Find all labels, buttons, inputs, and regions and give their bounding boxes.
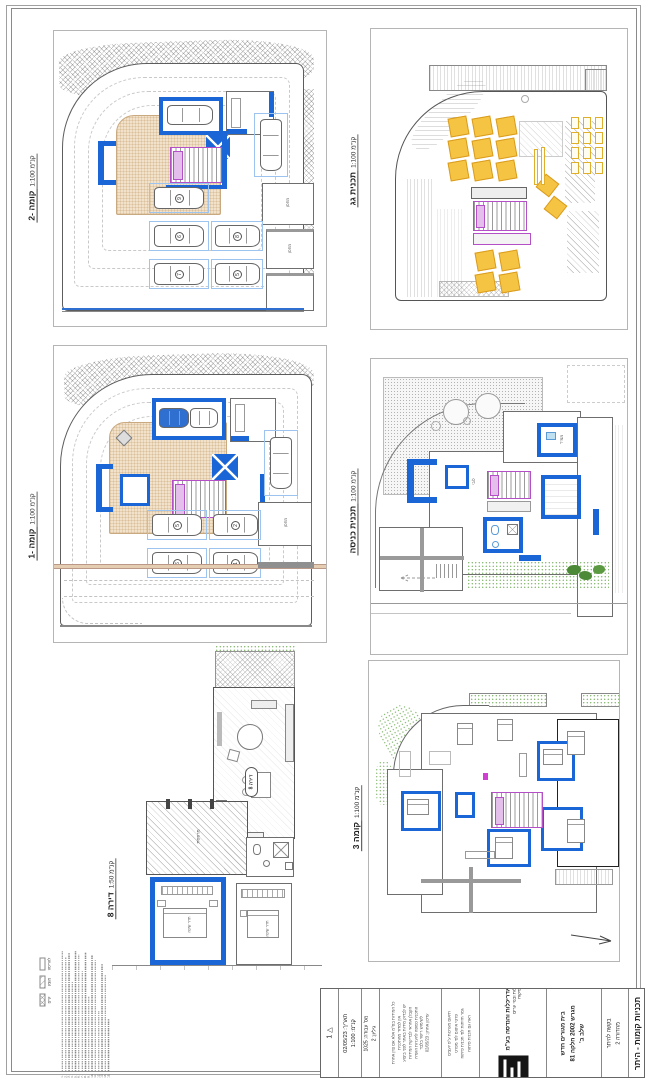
shaft-marker [483, 773, 488, 780]
tb-date-cell: תאריך: 02/05/23 קנ"מ: 1:100 [339, 989, 362, 1077]
room-label: מחסן [283, 518, 288, 527]
wall-segment [96, 464, 102, 512]
bed-icon [495, 837, 513, 859]
tb-number-cell: מס' עבודה: 1025 גיליון: 2 [362, 989, 380, 1077]
storage-room: מחסן [262, 183, 314, 225]
note-text-bar [78, 954, 79, 1071]
plan-apt8: דירה 8 מרפסת חדר שינה חדר שינה [100, 643, 330, 975]
parking-stall: 6 [147, 548, 207, 578]
roof-hatch [567, 211, 599, 273]
note-text-bar [107, 1019, 108, 1071]
shrub-icon [431, 421, 441, 431]
sofa [251, 700, 277, 709]
stall-number: 2 [231, 521, 240, 530]
tb-sheet-title-cell: תכניות קומות - היתר [629, 989, 646, 1077]
wall-segment [593, 509, 599, 535]
armchair [227, 749, 240, 762]
sheet-line: גיליון: 2 [371, 1015, 379, 1051]
bed-icon [567, 819, 585, 843]
pergola-hatch [585, 69, 607, 91]
note-number: 4. [70, 1072, 73, 1077]
note-text-bar [68, 953, 69, 1071]
fixture [546, 432, 556, 440]
parking-stall: 7 [149, 259, 209, 289]
note-text-bar [61, 951, 62, 1071]
note-item: 3. [67, 951, 70, 1078]
stamp-mark [510, 1067, 513, 1077]
bathroom [246, 837, 294, 877]
staircase [473, 201, 527, 231]
column [188, 799, 192, 809]
note-item: 15. [106, 951, 109, 1078]
plan-title: תכנית גג [347, 169, 358, 206]
plan-scale: קנ"מ 1:100 [30, 491, 38, 526]
balcony-hatch [555, 869, 613, 885]
staircase [487, 471, 531, 499]
plan-entrance: ממ"ד לובי [370, 358, 628, 655]
room-label: מרפסת [196, 829, 201, 843]
bathroom [483, 517, 523, 553]
plan-scale: קנ"מ 1:100 [350, 469, 358, 504]
garage-blue [159, 97, 223, 135]
panel-outline [571, 162, 579, 174]
closet [241, 889, 285, 898]
toilet-icon [491, 525, 499, 535]
shelf [235, 404, 245, 432]
car-icon [260, 119, 282, 171]
tb-notes-a-cell: כל המידות בס"מ אלא אם צוין אחרת אין למדו… [380, 989, 442, 1077]
parking-stall [264, 430, 298, 496]
car-icon: 2 [213, 514, 258, 536]
roof-hatch [439, 281, 509, 297]
scale-line: קנ"מ: 1:100 [350, 1014, 358, 1053]
room-label: מחסן [287, 244, 292, 253]
panel-outline [595, 117, 603, 129]
column [210, 799, 214, 809]
panel-outline [571, 117, 579, 129]
tb-notes-b-cell: תיאום מערכות ע"פ יועצים פרטי איטום לפי מ… [442, 989, 480, 1077]
wall-segment [227, 129, 247, 134]
note-text-bar [94, 960, 95, 1071]
shrub-blob [579, 571, 592, 580]
staircase [491, 792, 543, 828]
note-number: 1. [60, 1072, 63, 1077]
solar-panel [471, 115, 493, 137]
solar-panel [474, 249, 496, 271]
dimension-line [112, 965, 322, 970]
roof-drain [521, 95, 529, 103]
note-number: 6. [77, 1072, 80, 1077]
plan-title: תכנית כניסה [347, 504, 358, 556]
panel-outline [583, 147, 591, 159]
solar-panel [498, 249, 520, 271]
blue-room [455, 792, 475, 818]
shelf [231, 98, 241, 128]
kitchen-counter [465, 851, 495, 859]
apt-tag: דירה 8 [245, 767, 258, 797]
job-line: מס' עבודה: 1025 [363, 1015, 371, 1051]
direction-arrow-icon [393, 573, 437, 583]
title-block: △ 1 תאריך: 02/05/23 קנ"מ: 1:100 מס' עבוד… [320, 988, 645, 1078]
firm-stamp-logo [498, 1055, 528, 1077]
note-item: 1. [60, 951, 63, 1078]
legend-label: להריסה [46, 958, 51, 971]
legend-item: קיים [39, 994, 51, 1007]
car-icon: 6 [152, 552, 202, 574]
stair-landing-gray [487, 501, 531, 512]
date-line: תאריך: 02/05/23 [342, 1014, 350, 1053]
note-number: 13. [100, 1072, 103, 1077]
car-icon: 6 [154, 225, 204, 247]
panel-outline [583, 117, 591, 129]
site-edge-blue [62, 308, 304, 310]
tb-revision-cell: △ 1 [321, 989, 339, 1077]
nightstand [157, 900, 166, 907]
setback-dashed [567, 365, 625, 403]
note-item: 2. [64, 951, 67, 1078]
site-edge [60, 625, 312, 627]
stall-number: 7 [175, 270, 184, 279]
note-number: 14. [103, 1072, 106, 1077]
apt-tag-text: דירה 8 [249, 775, 255, 790]
blue-room [120, 474, 150, 506]
solar-panel [471, 159, 493, 181]
note-text-bar [98, 1011, 99, 1071]
note-item: 14. [103, 951, 106, 1078]
note-item: 6. [77, 951, 80, 1078]
parking-stall: 8 [211, 221, 263, 251]
sheet-title: תכניות קומות - היתר [633, 996, 642, 1069]
stamp-mark [517, 1061, 520, 1077]
sofa [429, 751, 451, 765]
plan-roof [370, 28, 628, 330]
plan-scale: קנ"מ 1:100 [354, 785, 362, 820]
note-item: 9. [87, 951, 90, 1078]
note-number: 7. [80, 1072, 83, 1077]
panel-outline [595, 162, 603, 174]
planter-strip [581, 693, 620, 707]
note-text-bar [71, 981, 72, 1071]
car-icon [167, 105, 213, 125]
solar-panel [447, 159, 469, 181]
stair-landing [490, 475, 499, 496]
bed-icon [247, 910, 279, 938]
note-text-bar [104, 975, 105, 1071]
stair-treads [436, 564, 460, 578]
note-item: 7. [80, 951, 83, 1078]
solar-panel [495, 115, 517, 137]
road-dashed-curve [62, 598, 142, 624]
note-number: 15. [107, 1072, 110, 1077]
legend-label: מוצע [46, 978, 51, 986]
legend-item: מוצע [39, 976, 51, 989]
room-label: ממ"ד [559, 435, 564, 444]
solar-panel [447, 137, 469, 159]
firm-subline: רישוי ופיקוח [516, 989, 521, 1050]
building-wing [387, 769, 443, 895]
wall-segment [469, 867, 473, 913]
legend-item: להריסה [39, 958, 51, 971]
project-line: בית מגורים חדש [560, 1005, 570, 1061]
mamad-room: ממ"ד [537, 423, 577, 457]
firm-name: מ.ג אדריכלות והנדסה בע"מ [505, 989, 511, 1050]
road-bar [258, 562, 314, 568]
note-item: 10. [90, 951, 93, 1078]
garage-blue [152, 398, 226, 440]
tv-unit [217, 712, 222, 746]
bed-icon [457, 723, 473, 745]
plan-roof-label: קנ"מ 1:100תכנית גג [332, 128, 370, 213]
plan-title: דירה 8 [105, 890, 116, 919]
column [166, 799, 170, 809]
panel-outline [595, 147, 603, 159]
closet [161, 886, 213, 895]
wall-segment [98, 180, 116, 185]
car-icon: 8 [215, 225, 260, 247]
blue-room [541, 475, 581, 519]
nightstand [209, 900, 218, 907]
note-number: 10. [90, 1072, 93, 1077]
plan-scale: קנ"מ 1:50 [108, 859, 116, 891]
car-icon [270, 437, 292, 489]
wall-segment [96, 507, 113, 512]
room-label: חדר שינה [265, 920, 270, 936]
note-item: 5. [73, 951, 76, 1078]
wall-segment [98, 141, 116, 146]
parking-stall [254, 113, 288, 177]
solar-panel [498, 271, 520, 293]
stair-landing [495, 797, 504, 825]
doc-line: מהדורה 2 [615, 1018, 624, 1048]
room-label: חדר שינה [187, 916, 192, 932]
legend-swatch [39, 976, 45, 989]
stall-number: 8 [233, 232, 242, 241]
bedroom-blue: חדר שינה [150, 877, 226, 965]
machine-room [473, 233, 531, 245]
parking-stall: 9 [149, 183, 209, 213]
wall-segment [222, 131, 227, 189]
revision-number: 1 [327, 1035, 334, 1039]
plan-entrance-label: קנ"מ 1:100תכנית כניסה [332, 462, 370, 562]
equipment-box [212, 454, 238, 480]
solar-panel [495, 159, 517, 181]
edge-hatch [615, 425, 625, 593]
shrub-blob [593, 565, 605, 574]
storage-room: מחסן [266, 229, 314, 269]
plan-scale: קנ"מ 1:100 [30, 153, 38, 188]
solar-panel [495, 137, 517, 159]
car-icon: 5 [215, 263, 260, 285]
car-icon: 9 [154, 187, 204, 209]
plan-title: קומה -1 [27, 526, 38, 560]
bed-icon [497, 719, 513, 741]
tb-doc-cell: בקשה להיתר מהדורה 2 [602, 989, 629, 1077]
project-line: שלב ב' [579, 1005, 589, 1061]
stamp-mark [503, 1059, 506, 1077]
room-label: מחסן [285, 198, 290, 207]
note-text-bar [84, 952, 85, 1071]
solar-panel [471, 137, 493, 159]
wall-segment [231, 436, 249, 441]
note-text-bar [75, 951, 76, 1071]
bed-icon [567, 731, 585, 755]
note-number: 12. [97, 1072, 100, 1077]
panel-outline [595, 132, 603, 144]
note-item: 11. [93, 951, 96, 1078]
shower-icon [273, 842, 289, 858]
sink-icon [263, 860, 270, 867]
stall-number: 9 [175, 194, 184, 203]
stair-landing [173, 151, 183, 180]
solar-panel [447, 115, 469, 137]
staircase [170, 147, 222, 183]
tb-small-line: ראה גם תכנית פיתוח [467, 1008, 474, 1058]
blue-room [445, 465, 469, 489]
nightstand [240, 910, 247, 917]
tree-icon [475, 393, 501, 419]
plan-scale: קנ"מ 1:100 [350, 134, 358, 169]
bed-icon [543, 749, 563, 765]
notes-block: 1. 2. 3. 4. 5. 6. 7. 8. 9. 10. 11. 12. 1… [58, 948, 112, 1080]
stall-number: 5 [233, 270, 242, 279]
car-icon [159, 408, 189, 428]
wall-segment [407, 497, 437, 503]
coffee-table [237, 724, 263, 750]
parking-stall: 2 [209, 510, 261, 540]
sink-icon [492, 541, 499, 548]
wall-segment [96, 464, 113, 469]
sofa [399, 751, 411, 777]
storage-room: מחסן [258, 502, 312, 546]
legend: קיים מוצע להריסה [30, 952, 60, 1012]
legend-swatch [39, 958, 45, 971]
panel-outline [534, 149, 538, 185]
plan-apt8-label: קנ"מ 1:50דירה 8 [94, 843, 124, 935]
panel-outline [541, 147, 545, 185]
legend-swatch [39, 994, 45, 1007]
panel-outline [571, 147, 579, 159]
roof-hatch [407, 179, 435, 297]
panel-outline [583, 132, 591, 144]
machine-room [471, 187, 527, 199]
wall-segment [407, 459, 437, 465]
kitchen-counter [519, 753, 527, 777]
firm-subline: אדריכלות ובנוי ערים [511, 989, 516, 1050]
plan-minus1-label: קנ"מ 1:100קומה -1 [12, 478, 50, 573]
washer-icon [285, 862, 293, 870]
parking-stall: 5 [147, 510, 207, 540]
storage-room [266, 273, 314, 311]
note-text-bar [65, 957, 66, 1071]
parking-stall: 1 [209, 548, 261, 578]
car-icon: 1 [213, 552, 258, 574]
plan-minus2-label: קנ"מ 1:100קומה -2 [12, 145, 50, 230]
site-edge [62, 311, 304, 312]
note-number: 2. [64, 1072, 67, 1077]
project-line: מגרש 2002 חלקה 81 [569, 1005, 579, 1061]
plan-title: קומה 3 [351, 820, 362, 851]
bed-icon [163, 908, 207, 938]
note-text-bar [81, 971, 82, 1071]
tb-small-line: עדכון אחרון: 02/05/23 [425, 1002, 431, 1065]
note-item: 12. [97, 951, 100, 1078]
note-number: 9. [87, 1072, 90, 1077]
stair-landing [476, 205, 485, 228]
solar-panel [474, 271, 496, 293]
panel-outline [583, 162, 591, 174]
revision-triangle-icon: △ [327, 1027, 334, 1032]
note-text-bar [91, 955, 92, 1071]
road-line [371, 603, 628, 604]
hall-hatch [224, 839, 248, 875]
car-icon: 5 [152, 514, 202, 536]
stall-number: 5 [173, 521, 182, 530]
parking-stall: 5 [211, 259, 263, 289]
doc-line: בקשה להיתר [606, 1018, 615, 1048]
note-text-bar [101, 964, 102, 1071]
bedroom-2: חדר שינה [236, 883, 292, 965]
plan-minus1: מחסן 5 2 6 1 [53, 345, 327, 643]
plan-floor3 [368, 660, 620, 962]
car-icon: 7 [154, 263, 204, 285]
wall-segment [98, 141, 104, 185]
drawing-sheet: { "sheet": {"bg": "#ffffff"}, "colors": … [0, 0, 648, 1080]
road-dashed-line [64, 596, 314, 597]
plan-minus2: מחסן מחסן 9 6 8 7 5 [53, 30, 327, 327]
road-line [371, 613, 571, 614]
bed-icon [407, 799, 429, 815]
car-icon [190, 408, 218, 428]
note-number: 8. [84, 1072, 87, 1077]
north-arrow-icon [569, 929, 617, 947]
note-item: 13. [100, 951, 103, 1078]
parking-stall: 6 [149, 221, 209, 251]
room-label: לובי [471, 478, 476, 485]
planter [215, 651, 295, 689]
note-number: 11. [93, 1072, 96, 1077]
tb-firm-cell: מ.ג אדריכלות והנדסה בע"מ אדריכלות ובנוי … [480, 989, 547, 1077]
tb-project-cell: בית מגורים חדש מגרש 2002 חלקה 81 שלב ב' [547, 989, 602, 1077]
plan-floor3-label: קנ"מ 1:100קומה 3 [338, 772, 372, 864]
panel-outline [571, 132, 579, 144]
note-item: 8. [83, 951, 86, 1078]
note-text-bar [88, 996, 89, 1071]
road-dashed-line [64, 580, 314, 581]
legend-label: קיים [46, 996, 51, 1003]
note-number: 3. [67, 1072, 70, 1077]
sofa [285, 704, 294, 762]
note-number: 5. [74, 1072, 77, 1077]
shrub-icon [463, 417, 471, 425]
toilet-icon [253, 844, 261, 855]
note-item: 4. [70, 951, 73, 1078]
plan-title: קומה -2 [27, 188, 38, 222]
stall-number: 6 [175, 232, 184, 241]
shower-icon [507, 524, 518, 535]
